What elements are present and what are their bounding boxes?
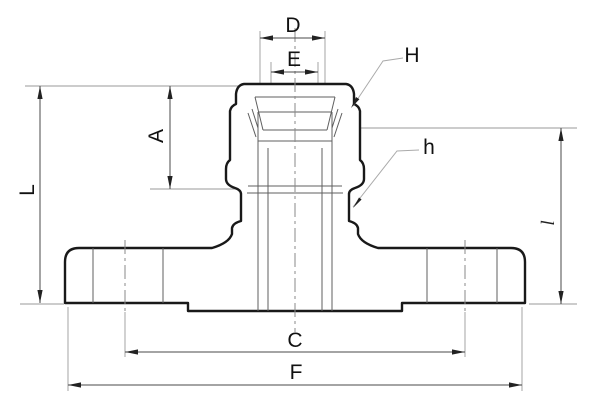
dimension-C: C — [125, 329, 465, 355]
arrowhead — [558, 291, 563, 304]
arrowhead — [509, 382, 522, 387]
dimension-F: F — [68, 361, 522, 388]
callout-H: H — [351, 44, 420, 108]
dimension-l-small: l — [538, 128, 564, 304]
arrowhead — [167, 176, 172, 189]
arrowhead — [37, 86, 42, 99]
arrowhead — [167, 86, 172, 99]
dim-label-A: A — [145, 129, 168, 143]
dim-label-E: E — [287, 48, 301, 71]
callout-h: h — [353, 136, 435, 208]
arrowhead — [305, 69, 318, 74]
dimension-E: E — [271, 48, 318, 75]
dimension-D: D — [260, 14, 325, 41]
dim-label-D: D — [285, 14, 300, 37]
dim-label-l-small: l — [538, 220, 559, 225]
arrowhead — [37, 290, 42, 303]
arrowhead — [353, 198, 362, 209]
arrowhead — [558, 128, 563, 141]
callout-label-H: H — [404, 44, 419, 67]
arrowhead — [312, 35, 325, 40]
dim-label-L: L — [16, 184, 39, 196]
dimension-A: A — [145, 86, 173, 189]
arrowhead — [271, 69, 284, 74]
dimension-L: L — [16, 86, 43, 303]
arrowhead — [125, 349, 138, 354]
callout-label-h: h — [423, 136, 435, 159]
arrowhead — [68, 382, 81, 387]
arrowhead — [260, 35, 273, 40]
flange-fitting-drawing: D E A L l C — [0, 0, 600, 406]
dim-label-C: C — [287, 329, 302, 352]
technical-drawing-page: D E A L l C — [0, 0, 600, 406]
leader-line-H — [353, 58, 403, 106]
dim-label-F: F — [290, 361, 303, 384]
arrowhead — [452, 349, 465, 354]
